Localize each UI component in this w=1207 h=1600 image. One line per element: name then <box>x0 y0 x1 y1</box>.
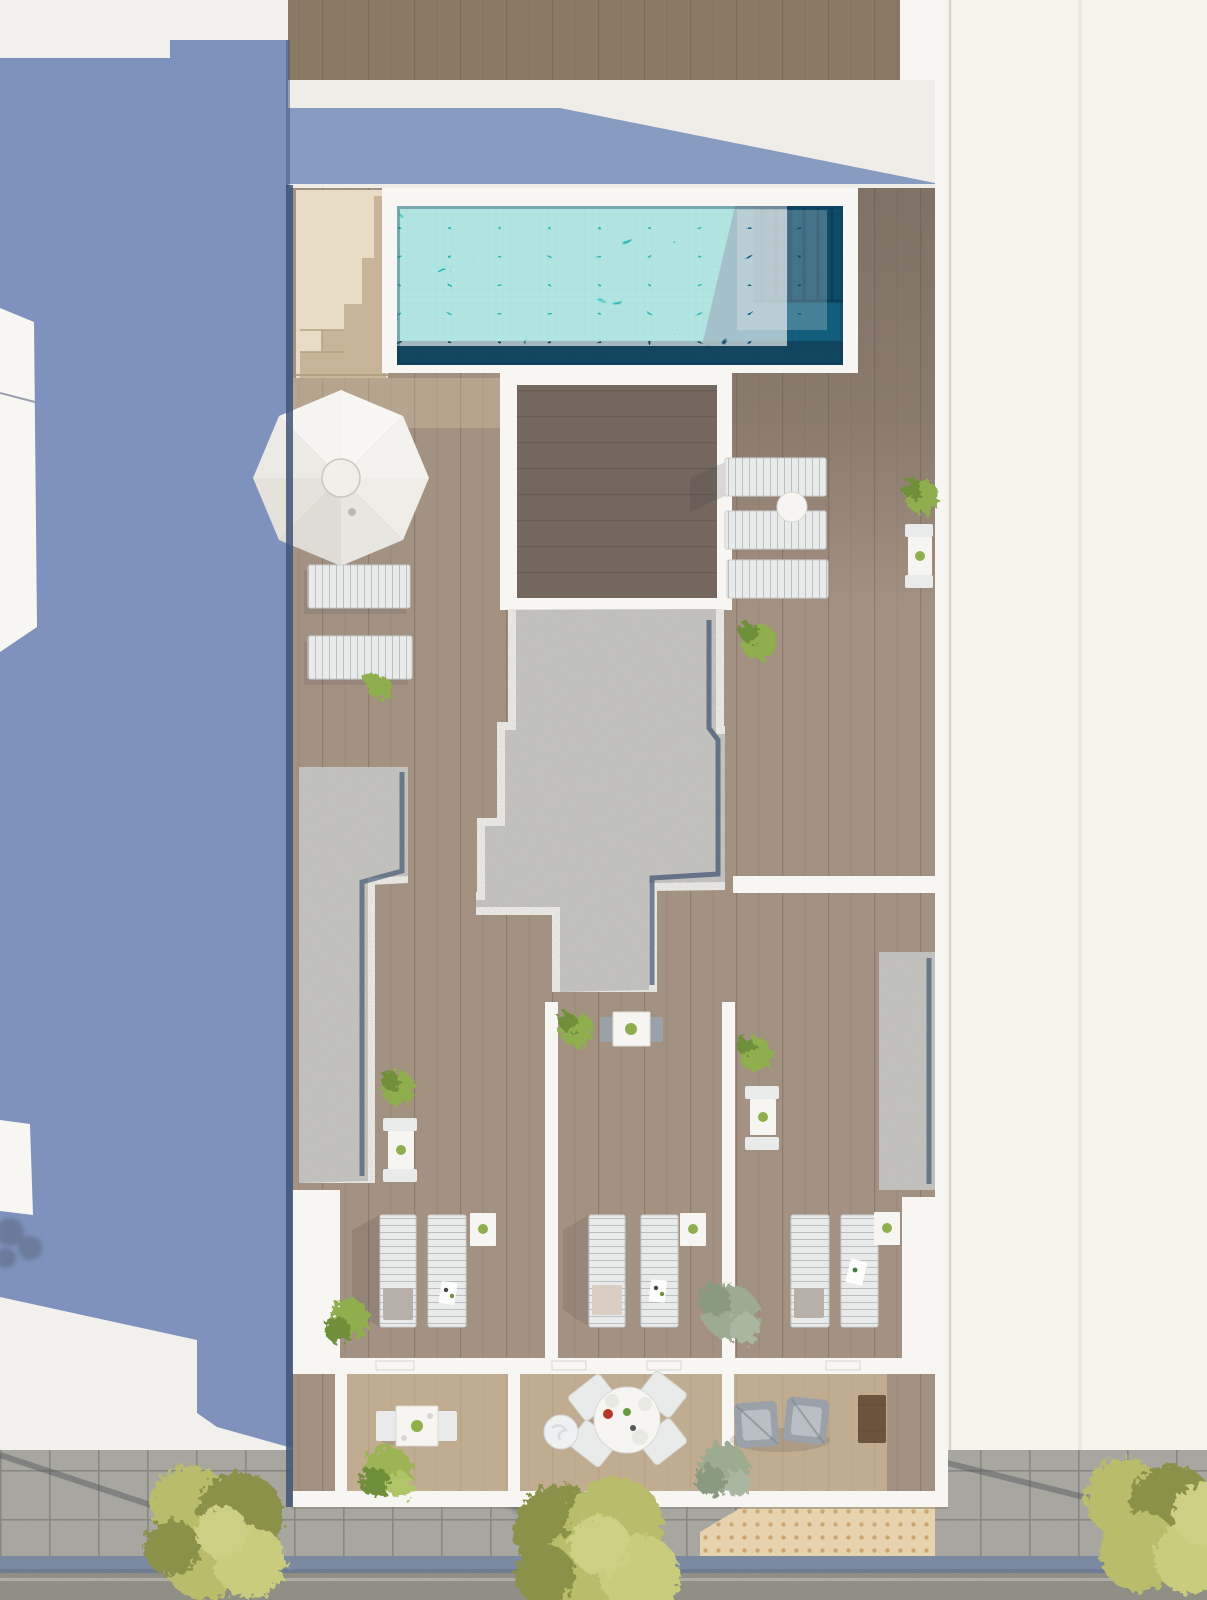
towel-roll <box>544 1415 578 1449</box>
right-neighbor-building <box>948 0 1207 1452</box>
building-cast-shadow <box>0 40 292 1448</box>
wall-west-ledge <box>292 1190 340 1372</box>
dining-set-b <box>600 1012 663 1046</box>
red-plate <box>603 1409 613 1419</box>
west-parapet-edge <box>286 185 293 1507</box>
magazine <box>439 1281 458 1305</box>
pool-caustics-deep <box>737 210 827 330</box>
left-rooftop-block <box>0 308 37 652</box>
umbrella-crank <box>348 508 356 516</box>
magazine <box>649 1279 667 1303</box>
towel <box>592 1285 622 1315</box>
wall-room-divider-1 <box>545 1002 558 1372</box>
subject-building <box>253 0 948 1507</box>
left-rooftop-block-2 <box>0 1120 33 1215</box>
parasol-umbrella <box>253 390 429 566</box>
left-neighbor-area <box>0 40 292 1448</box>
wall-balcony-2 <box>508 1372 520 1505</box>
atrium-wood-grain <box>517 385 717 598</box>
wall-east-stub <box>733 876 948 893</box>
dining-set-balcony-a <box>376 1406 457 1447</box>
armchair <box>734 1401 780 1449</box>
towel <box>794 1288 824 1318</box>
armchair <box>783 1396 830 1445</box>
bistro-set-c <box>745 1086 779 1150</box>
rooftop-aerial-render <box>0 0 1207 1600</box>
towel <box>383 1288 413 1320</box>
swimming-pool <box>382 188 858 373</box>
wall-balcony-1 <box>335 1372 347 1505</box>
green-plate <box>623 1408 631 1416</box>
tactile-paving-dots <box>700 1507 935 1556</box>
round-side-table <box>777 492 807 522</box>
round-dining-table <box>594 1387 660 1453</box>
roof-staircase <box>296 190 388 378</box>
top-wood-grain <box>288 0 900 80</box>
west-parapet-edge-top <box>286 40 290 188</box>
bistro-set-east <box>905 524 933 588</box>
pool-caustics <box>397 206 787 346</box>
wall-east-parapet <box>935 0 948 1507</box>
umbrella-hub <box>322 459 360 497</box>
bistro-set-a <box>383 1118 417 1182</box>
wall-east-ledge <box>902 1197 935 1372</box>
